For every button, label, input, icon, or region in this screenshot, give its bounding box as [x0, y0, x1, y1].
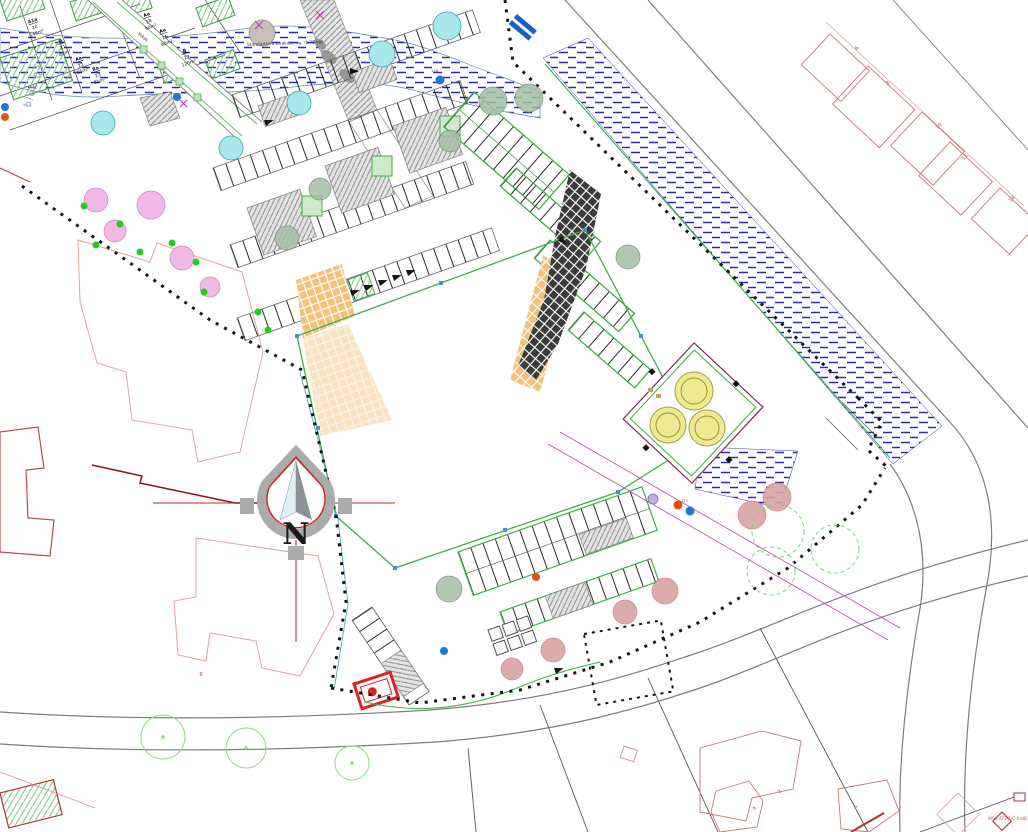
- site-plan-canvas: sokak 6 8 10 12 14 2 4 1 8: [0, 0, 1028, 832]
- house-bottom-1: [838, 780, 899, 832]
- tree: [652, 578, 678, 604]
- site-plan-drawing: sokak 6 8 10 12 14 2 4 1 8: [0, 0, 1028, 832]
- tree: [650, 407, 686, 443]
- building-far-left: [0, 427, 54, 556]
- pink-trees: [84, 188, 220, 297]
- tree: [439, 130, 461, 152]
- house-10: [891, 112, 965, 185]
- green-building: [196, 0, 235, 27]
- red-small-structure-2: [1014, 793, 1025, 801]
- red-small-structure: [993, 812, 1011, 830]
- house-6: [801, 34, 869, 102]
- pink-small-structure: [620, 746, 637, 762]
- house-bottom-4: [711, 781, 763, 832]
- plan-reference-code: W08-AT3-1/C-tretB: [988, 816, 1027, 821]
- utility-dot: [686, 507, 695, 516]
- building-left-lower: [174, 538, 334, 676]
- tree: [616, 245, 640, 269]
- tree: [501, 658, 523, 680]
- hatched-block: [545, 582, 593, 619]
- house-number: 10: [935, 122, 944, 131]
- green-building: [0, 0, 45, 21]
- blok03-buildings-green: [0, 0, 240, 828]
- tree: [219, 136, 243, 160]
- house-number: 6: [854, 45, 861, 51]
- tree: [613, 600, 637, 624]
- branch-road-right-a: [948, 420, 992, 832]
- transformer-symbol: [354, 672, 398, 708]
- tree-outline: [747, 547, 795, 595]
- tree: [515, 84, 543, 112]
- north-letter: N: [282, 517, 309, 552]
- house-8: [833, 66, 915, 148]
- tree: [479, 87, 507, 115]
- tree: [287, 91, 311, 115]
- utility-dot: [532, 573, 540, 581]
- utility-dot: [436, 76, 445, 85]
- corner-parcel-line: [893, 0, 1028, 150]
- house-bottom-2: [700, 731, 801, 821]
- tree: [275, 226, 299, 250]
- tree: [137, 191, 165, 219]
- building-left-large: [78, 240, 263, 462]
- house-number: 8: [199, 672, 202, 678]
- house-number: 1: [853, 804, 860, 810]
- tree: [738, 501, 766, 529]
- survey-lines-red: [92, 465, 395, 642]
- purple-utility-circle: [648, 494, 658, 504]
- tree: [689, 410, 725, 446]
- tree: [763, 483, 791, 511]
- tree: [436, 576, 462, 602]
- utility-dot: [1, 113, 9, 121]
- container-squares: [488, 616, 537, 655]
- tree: [84, 188, 108, 212]
- driveway-edge-b: [826, 418, 858, 450]
- branch-road-right-b: [890, 464, 923, 832]
- utility-dot: [1, 103, 9, 111]
- house-number: 4: [752, 805, 759, 811]
- tree: [541, 638, 565, 662]
- house-12: [919, 142, 993, 215]
- red-thick-line: [851, 813, 884, 832]
- tree-outline: [752, 505, 804, 557]
- tree: [170, 246, 194, 270]
- house-14: [971, 188, 1028, 254]
- tree: [309, 178, 331, 200]
- speed-bump-bars: [509, 14, 537, 41]
- tree: [369, 41, 395, 67]
- sidewalk-hatch-bands: [543, 38, 942, 508]
- tree: [433, 12, 461, 40]
- tree: [91, 111, 115, 135]
- tree-outline: [811, 525, 859, 573]
- dot-elevation-label: 126: [431, 69, 439, 73]
- house-number: 8: [885, 80, 892, 86]
- green-building-corner: [0, 780, 62, 828]
- red-edge-line: [0, 168, 30, 182]
- utility-dot: [440, 647, 448, 655]
- dot-elevation-label: 127: [681, 499, 688, 503]
- utility-dot: [173, 93, 181, 101]
- house-number: 2: [777, 789, 784, 795]
